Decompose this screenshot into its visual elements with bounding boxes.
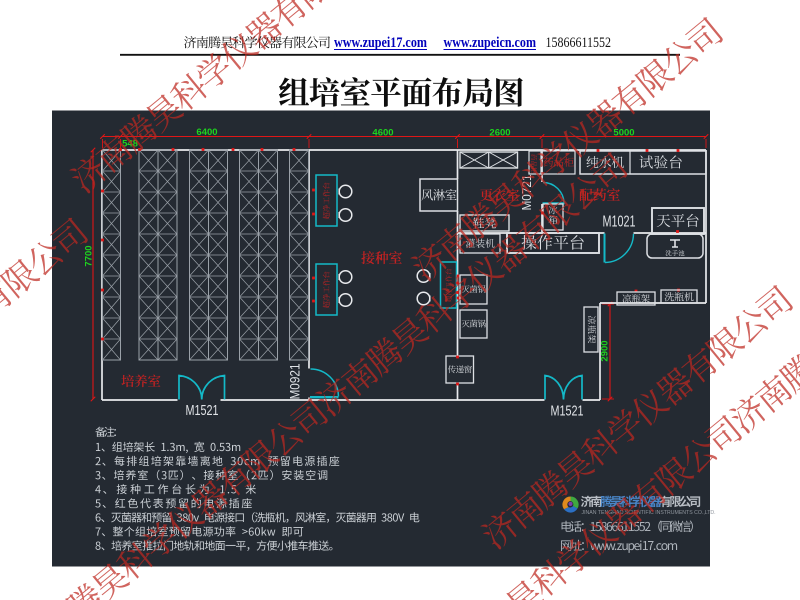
svg-text:5000: 5000 <box>613 128 634 139</box>
svg-text:www.zupei17.com: www.zupei17.com <box>334 35 427 51</box>
svg-text:15866611552: 15866611552 <box>546 35 612 51</box>
svg-text:2900: 2900 <box>600 340 611 361</box>
svg-text:7700: 7700 <box>84 245 95 266</box>
svg-text:2600: 2600 <box>489 128 510 139</box>
svg-text:M1521: M1521 <box>551 404 584 420</box>
svg-text:JINAN TENGHAO SCIENTIFIC INSTR: JINAN TENGHAO SCIENTIFIC INSTRUMENTS CO.… <box>582 510 716 516</box>
svg-text:6400: 6400 <box>196 127 217 138</box>
svg-text:M1521: M1521 <box>186 403 219 419</box>
svg-text:M0921: M0921 <box>288 364 303 400</box>
svg-text:4600: 4600 <box>372 128 393 139</box>
svg-text:M1021: M1021 <box>603 214 636 231</box>
svg-text:www.zupeicn.com: www.zupeicn.com <box>444 35 537 51</box>
